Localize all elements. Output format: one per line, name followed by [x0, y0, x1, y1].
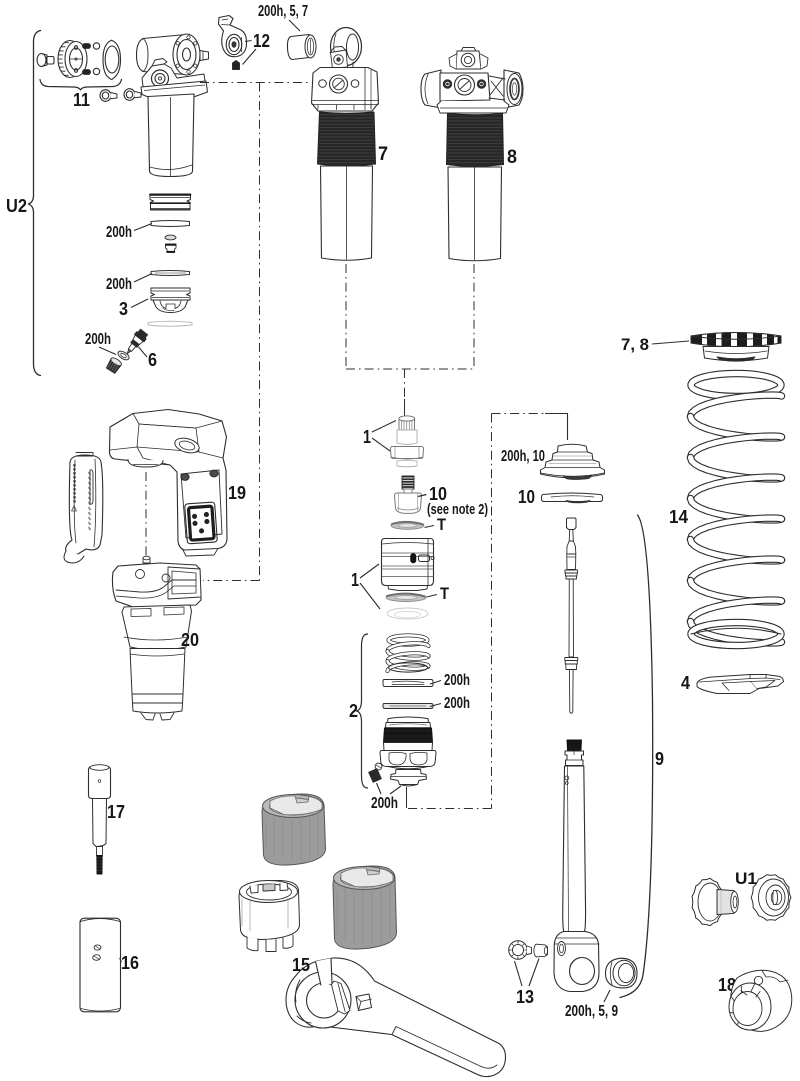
svg-text:200h: 200h: [106, 276, 132, 293]
svg-text:12: 12: [253, 31, 270, 51]
svg-text:20: 20: [181, 630, 199, 650]
svg-text:10: 10: [518, 487, 535, 507]
svg-text:7: 7: [378, 144, 388, 165]
svg-text:200h: 200h: [85, 331, 111, 348]
svg-text:1: 1: [363, 427, 371, 447]
svg-text:16: 16: [121, 953, 139, 973]
svg-text:200h: 200h: [444, 672, 470, 689]
svg-text:U1: U1: [735, 869, 757, 888]
svg-text:200h, 5, 9: 200h, 5, 9: [565, 1003, 618, 1020]
svg-text:8: 8: [507, 147, 517, 168]
svg-text:2: 2: [349, 701, 358, 721]
svg-text:6: 6: [148, 350, 157, 370]
svg-text:4: 4: [681, 673, 690, 693]
svg-text:U2: U2: [6, 196, 27, 216]
svg-text:200h: 200h: [106, 224, 132, 241]
svg-text:19: 19: [228, 483, 246, 503]
svg-text:1: 1: [351, 570, 359, 590]
svg-text:200h, 10: 200h, 10: [501, 448, 545, 465]
svg-text:11: 11: [73, 90, 90, 110]
svg-text:200h: 200h: [371, 795, 398, 812]
svg-text:17: 17: [107, 802, 125, 822]
svg-text:T: T: [440, 584, 450, 603]
svg-text:200h: 200h: [444, 695, 470, 712]
svg-text:9: 9: [655, 749, 664, 769]
svg-text:200h, 5, 7: 200h, 5, 7: [258, 3, 308, 20]
svg-text:13: 13: [516, 987, 534, 1007]
svg-text:T: T: [437, 515, 447, 534]
svg-text:15: 15: [292, 955, 310, 975]
svg-text:14: 14: [669, 507, 688, 527]
svg-text:7, 8: 7, 8: [621, 335, 649, 354]
svg-text:3: 3: [119, 299, 128, 319]
